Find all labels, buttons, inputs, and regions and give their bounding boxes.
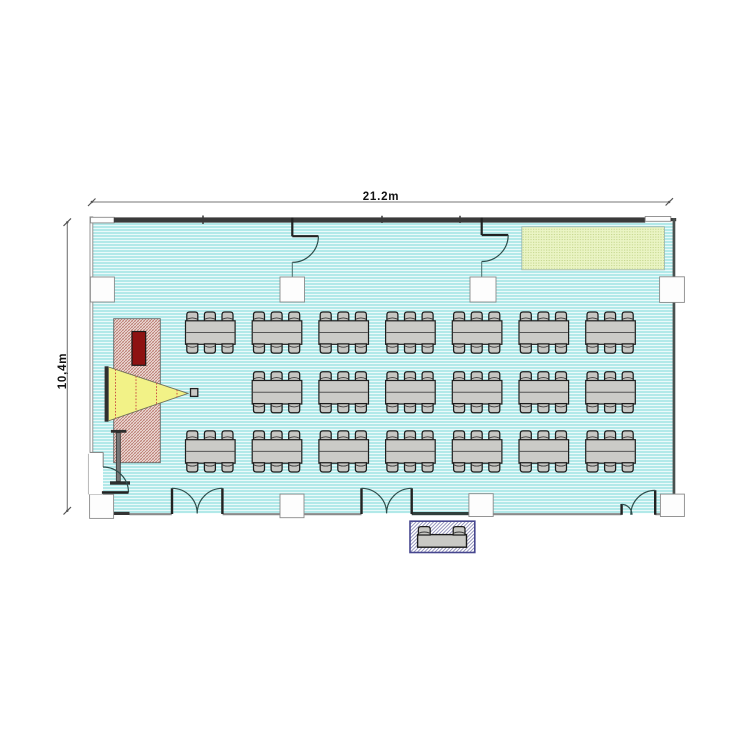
svg-text:10,4m: 10,4m [57, 353, 69, 390]
svg-text:21.2m: 21.2m [363, 191, 400, 203]
